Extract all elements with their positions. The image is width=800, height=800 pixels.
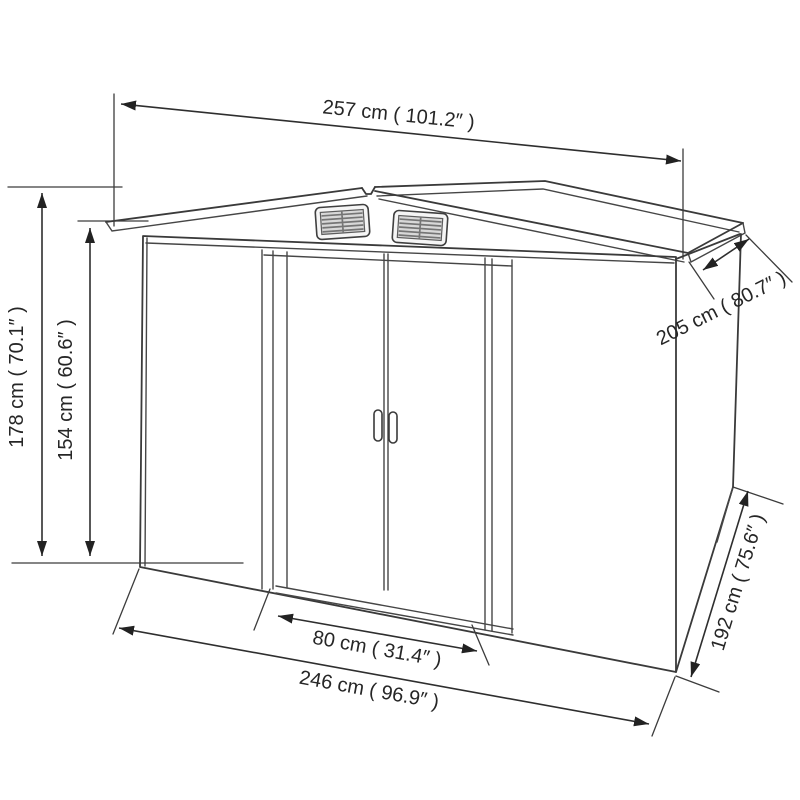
front-wall-left-corner-trim bbox=[145, 238, 147, 566]
door-handle-left bbox=[374, 410, 382, 441]
roof-vent-right bbox=[392, 210, 448, 246]
door-frame-right-post bbox=[492, 259, 512, 633]
roof-ridge-cap-notch bbox=[362, 187, 375, 194]
right-wall-top-edge bbox=[676, 234, 740, 259]
dim-wall-height: 154 cm ( 60.6″ ) bbox=[55, 221, 148, 556]
shed-structure bbox=[106, 181, 745, 672]
dim-base-depth-ext-bottom bbox=[676, 676, 719, 692]
door-bottom-track bbox=[276, 586, 513, 635]
dim-total-height-label: 178 cm ( 70.1″ ) bbox=[6, 306, 28, 448]
dim-roof-width-label: 257 cm ( 101.2″ ) bbox=[322, 96, 476, 133]
shed-front-wall bbox=[140, 236, 676, 672]
right-wall-bottom-edge-overshoot bbox=[717, 487, 733, 542]
dim-base-depth: 192 cm ( 75.6″ ) bbox=[676, 487, 783, 692]
door-frame-left-post bbox=[262, 250, 273, 589]
dim-base-width-ext-left bbox=[113, 569, 139, 634]
door-center-meeting-stiles bbox=[384, 254, 388, 590]
dim-roof-depth-ext-front bbox=[689, 262, 714, 299]
dim-total-height: 178 cm ( 70.1″ ) bbox=[6, 187, 243, 563]
sliding-doors bbox=[262, 250, 513, 635]
roof-vent-left bbox=[315, 204, 370, 240]
dim-base-depth-ext-top bbox=[733, 487, 783, 504]
dim-door-width-ext-left bbox=[254, 589, 270, 630]
dimension-annotations: 257 cm ( 101.2″ ) 178 cm ( 70.1″ ) 154 c… bbox=[6, 94, 792, 736]
dim-roof-depth: 205 cm ( 80.7″ ) bbox=[653, 235, 792, 350]
diagram-svg: 257 cm ( 101.2″ ) 178 cm ( 70.1″ ) 154 c… bbox=[0, 0, 800, 800]
front-wall-outline bbox=[140, 236, 676, 672]
right-wall-back-edge bbox=[733, 234, 741, 487]
shed-dimension-diagram: 257 cm ( 101.2″ ) 178 cm ( 70.1″ ) 154 c… bbox=[0, 0, 800, 800]
dim-base-depth-label: 192 cm ( 75.6″ ) bbox=[707, 511, 769, 653]
dim-wall-height-label: 154 cm ( 60.6″ ) bbox=[55, 319, 77, 461]
door-handle-right bbox=[389, 412, 397, 443]
dim-roof-depth-label: 205 cm ( 80.7″ ) bbox=[653, 267, 790, 350]
dim-base-width-ext-right bbox=[652, 677, 675, 736]
